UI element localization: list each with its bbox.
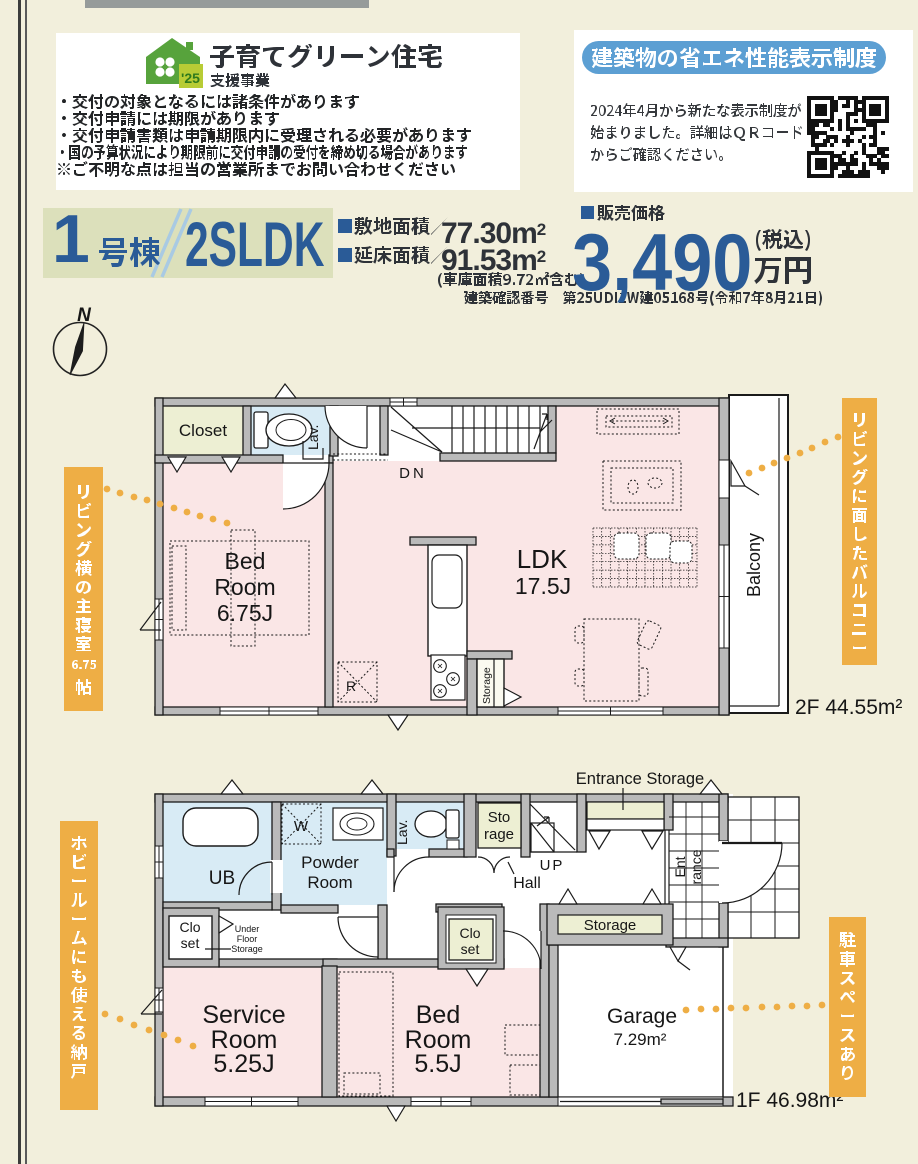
svg-text:N: N — [77, 305, 92, 326]
svg-text:Bed: Bed — [416, 1001, 460, 1029]
svg-text:Bed: Bed — [225, 548, 266, 574]
svg-text:6.75J: 6.75J — [217, 600, 273, 626]
svg-text:set: set — [181, 935, 200, 951]
svg-text:Lav.: Lav. — [305, 425, 321, 450]
svg-text:17.5J: 17.5J — [515, 573, 571, 599]
svg-text:Clo: Clo — [459, 925, 480, 941]
svg-text:Room: Room — [214, 574, 275, 600]
svg-text:Floor: Floor — [237, 934, 258, 944]
svg-text:Powder: Powder — [301, 853, 359, 872]
svg-text:W: W — [294, 818, 309, 835]
svg-text:Service: Service — [202, 1001, 285, 1029]
svg-text:UP: UP — [540, 857, 565, 874]
svg-text:Under: Under — [235, 924, 260, 934]
svg-text:7.29m²: 7.29m² — [614, 1030, 667, 1049]
svg-text:rage: rage — [484, 826, 514, 843]
svg-text:DN: DN — [399, 465, 427, 482]
svg-text:Balcony: Balcony — [744, 533, 764, 597]
svg-text:Room: Room — [307, 873, 352, 892]
svg-text:Garage: Garage — [607, 1005, 677, 1028]
svg-text:Closet: Closet — [179, 421, 227, 440]
svg-text:Storage: Storage — [584, 917, 637, 934]
svg-text:Hall: Hall — [513, 875, 541, 892]
svg-text:1F 46.98m²: 1F 46.98m² — [736, 1089, 843, 1112]
svg-text:LDK: LDK — [517, 544, 568, 574]
svg-text:Ent: Ent — [672, 856, 688, 877]
svg-text:Entrance Storage: Entrance Storage — [576, 770, 704, 788]
svg-text:2F 44.55m²: 2F 44.55m² — [795, 696, 902, 719]
svg-text:5.25J: 5.25J — [213, 1050, 274, 1078]
svg-text:UB: UB — [209, 868, 235, 889]
svg-text:Lav.: Lav. — [394, 820, 410, 845]
svg-text:rance: rance — [688, 849, 704, 884]
svg-text:set: set — [461, 941, 480, 957]
svg-text:5.5J: 5.5J — [414, 1050, 461, 1078]
svg-text:Sto: Sto — [488, 809, 511, 826]
svg-text:Clo: Clo — [179, 919, 200, 935]
svg-text:R: R — [346, 678, 356, 694]
svg-text:Storage: Storage — [231, 944, 263, 954]
svg-text:Storage: Storage — [481, 667, 493, 704]
